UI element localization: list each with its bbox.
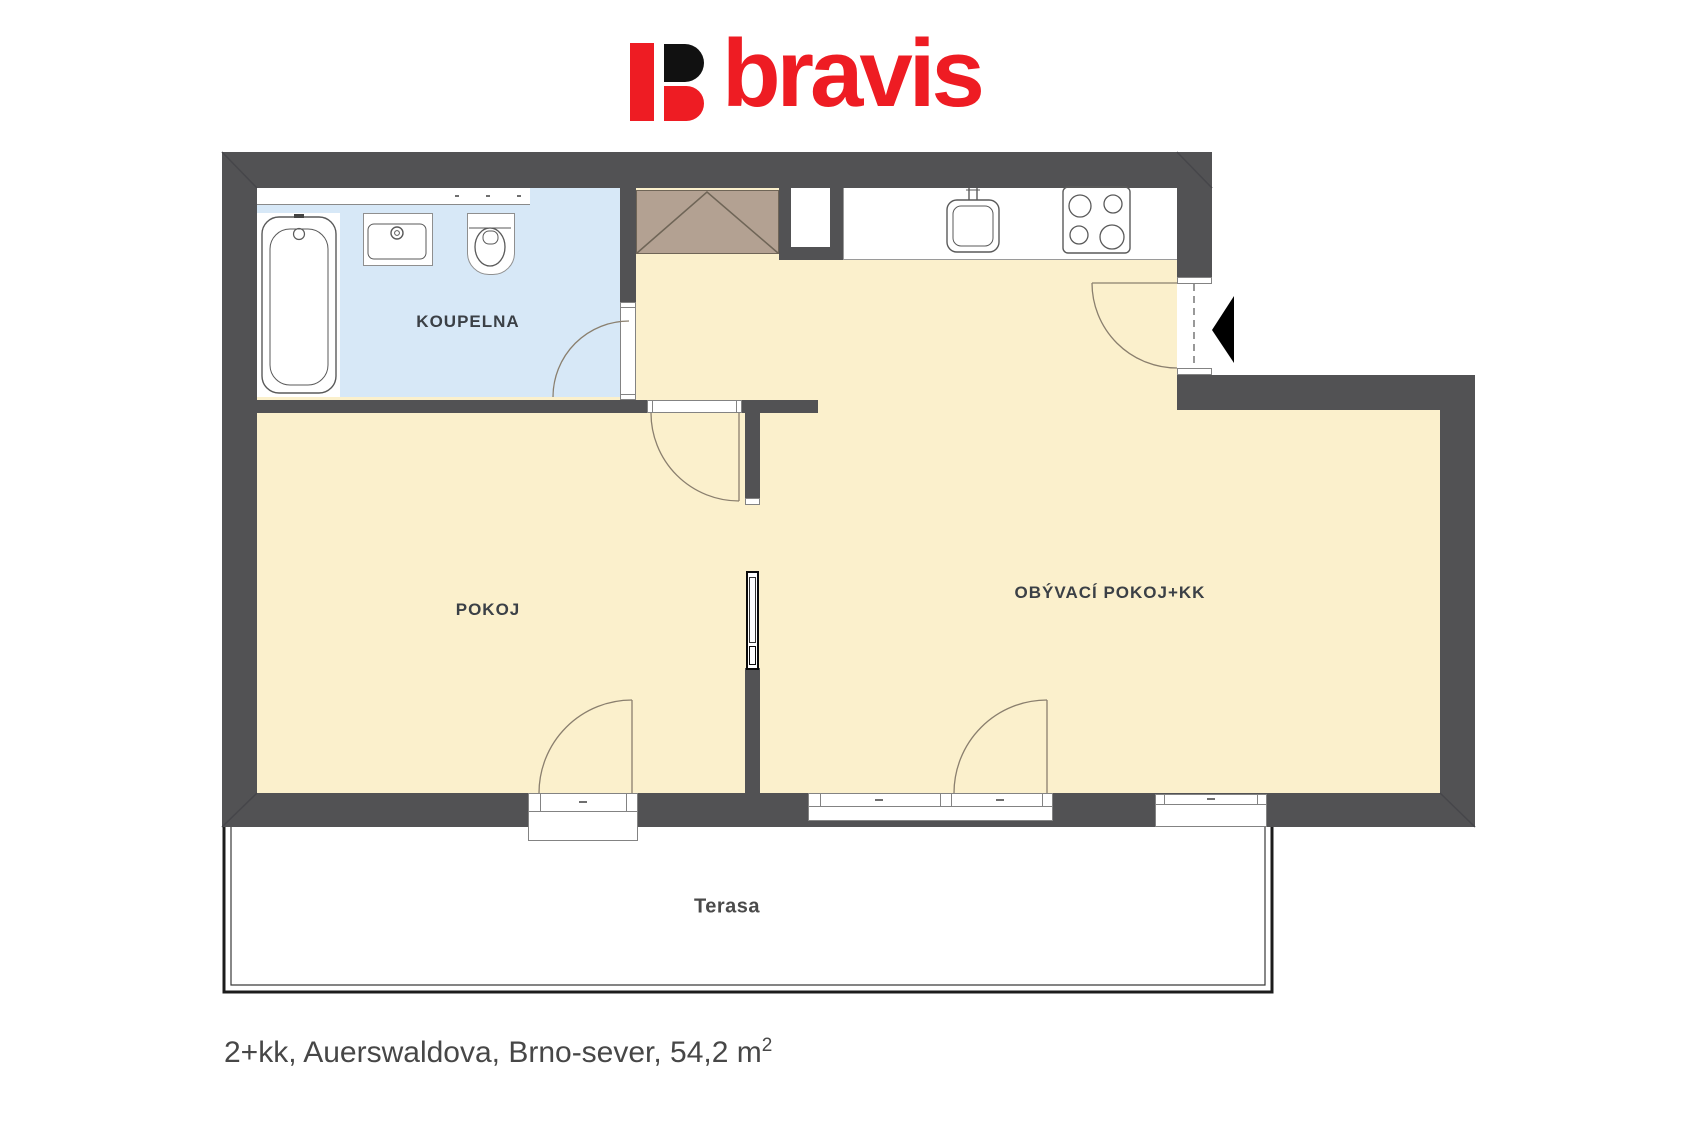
bedroom-door [647,400,742,413]
wardrobe [636,190,779,254]
sliding-door-inner [749,577,756,643]
sliding-door-jamb [745,498,760,505]
wall-interior-stub [742,400,818,413]
wall-entry-right-upper [1177,188,1212,277]
label-living-kitchen: OBÝVACÍ POKOJ+KK [1015,583,1206,603]
floorplan-page: bravis [0,0,1694,1127]
frame-tick [579,801,587,803]
caption-text: 2+kk, Auerswaldova, Brno-sever, 54,2 m [224,1036,762,1069]
kitchen-counter [843,188,1177,260]
frame-line [1155,804,1267,805]
wall-bathroom-vertical [620,188,636,302]
frame-line [540,793,541,812]
entrance-door-opening [1177,277,1212,375]
entrance-door-jamb [1177,368,1212,375]
wall-right-horizontal [1177,375,1475,410]
exterior-area [1212,152,1440,375]
bathroom-door-jamb [620,394,636,400]
logo-bar-icon [630,43,654,121]
frame-line [808,806,1053,807]
bathroom-door [620,302,636,400]
wall-partition-lower [745,668,760,793]
wall-shaft-bottom [779,247,843,260]
label-bedroom: POKOJ [456,600,521,620]
living-window-door [808,793,1053,821]
window-tick [455,195,459,197]
entrance-door-jamb [1177,277,1212,284]
bathroom-door-jamb [620,302,636,308]
frame-line [820,793,821,807]
logo-b-top-icon [664,44,704,82]
logo-wordmark: bravis [722,26,981,122]
wall-interior-horizontal [257,400,647,413]
window-tick [517,195,521,197]
bedroom-door-jamb [736,400,742,413]
wall-left [222,152,257,827]
frame-line [1042,793,1043,807]
wall-partition-upper [745,413,760,498]
label-bathroom: KOUPELNA [416,312,519,332]
frame-line [1164,794,1165,805]
bathtub-base [257,213,340,397]
window-tick [486,195,490,197]
shaft-niche [791,188,830,247]
wall-right [1440,410,1475,793]
toilet-base [467,213,515,275]
frame-tick [1207,798,1215,800]
frame-line [1257,794,1258,805]
sliding-door-handle [749,646,756,665]
bedroom-door-jamb [647,400,653,413]
frame-line [528,811,638,812]
frame-line [951,793,952,807]
logo-b-bottom-icon [664,86,704,121]
frame-line [626,793,627,812]
wall-top [222,152,1212,188]
frame-tick [996,799,1004,801]
frame-line [940,793,941,807]
plan-caption: 2+kk, Auerswaldova, Brno-sever, 54,2 m2 [224,1035,772,1070]
caption-superscript: 2 [762,1035,773,1056]
frame-tick [875,799,883,801]
label-terrace: Terasa [694,896,760,919]
washbasin-base [363,213,433,266]
